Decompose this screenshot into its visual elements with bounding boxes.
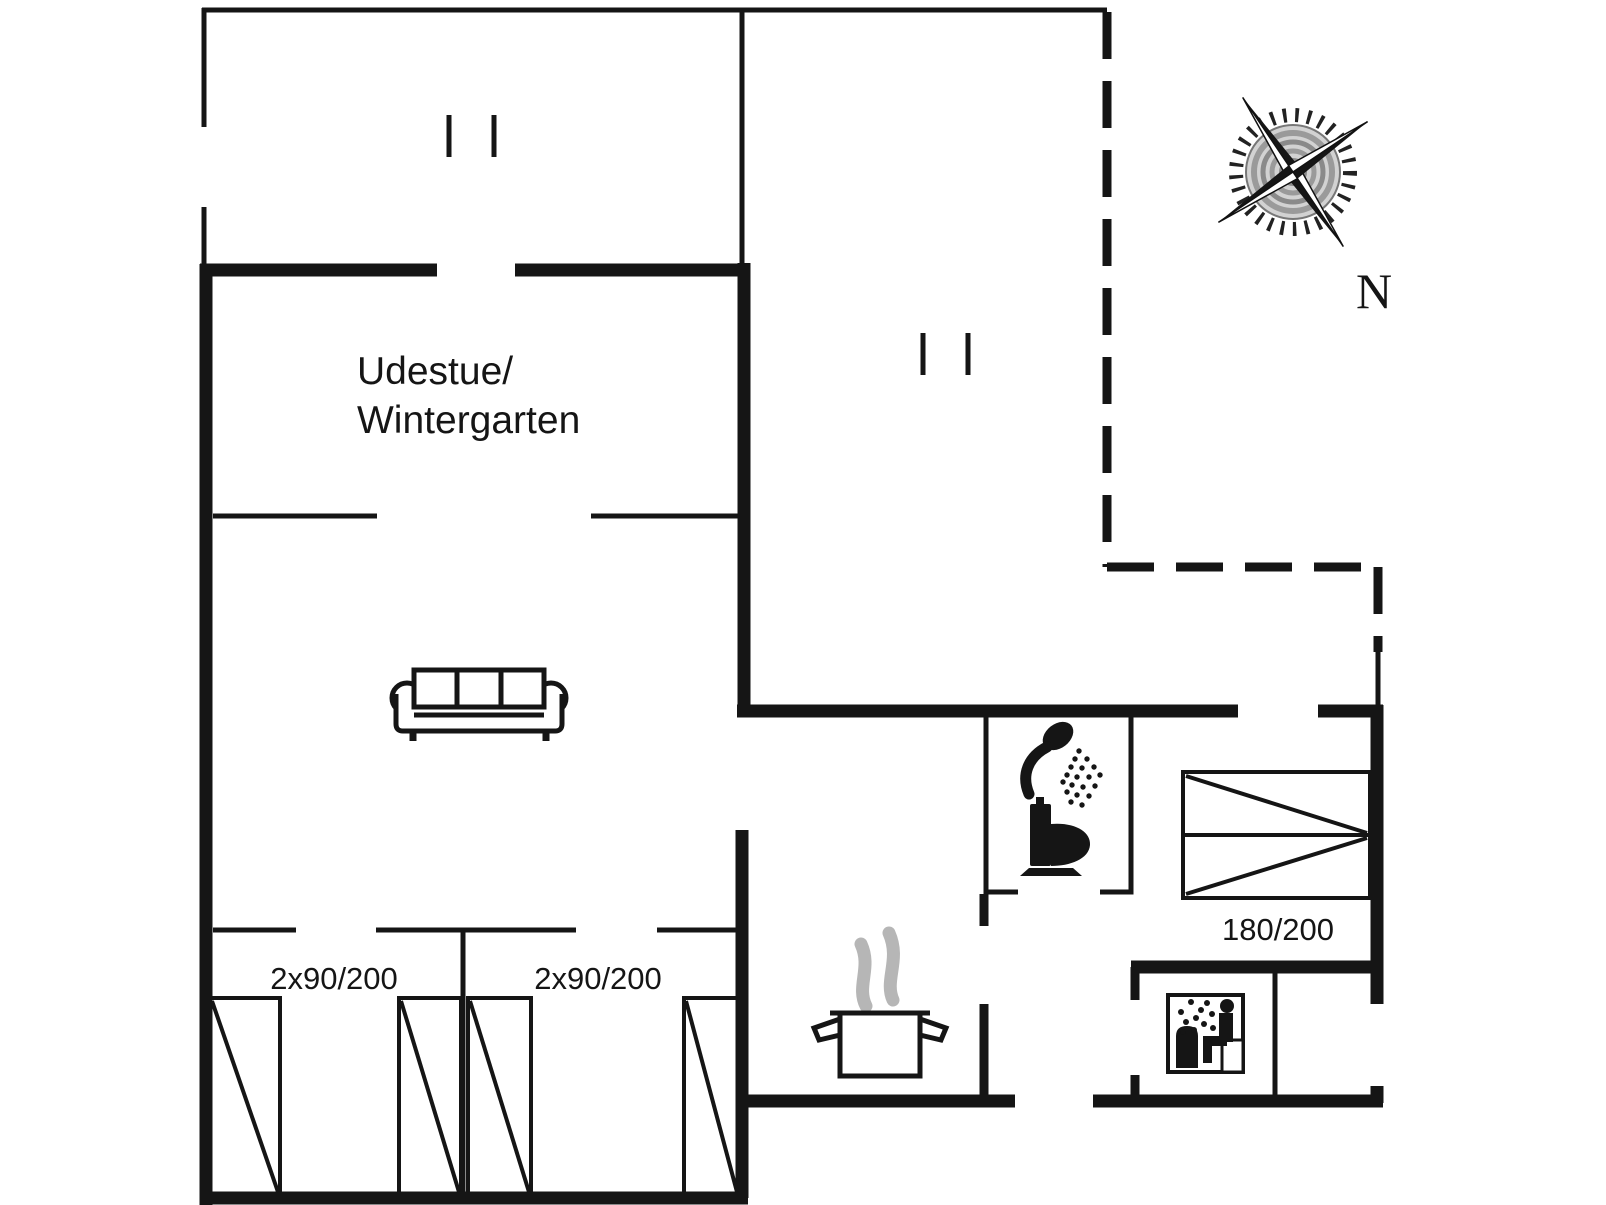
compass-north-label: N (1356, 263, 1392, 319)
toilet-icon (1020, 797, 1090, 876)
single-bed-icon-3 (468, 998, 531, 1194)
compass-star (1168, 47, 1418, 297)
shower-icon (1026, 716, 1103, 808)
compass-rose-icon (1168, 47, 1418, 297)
shower-spray (1060, 748, 1102, 807)
single-bed-icon-1 (210, 998, 280, 1194)
bed-size-label-left: 2x90/200 (270, 961, 398, 996)
room-label-conservatory-line2: Wintergarten (357, 399, 580, 442)
single-bed-icon-4 (684, 998, 739, 1194)
double-bed-icon (1183, 772, 1370, 898)
room-label-conservatory-line1: Udestue/ (357, 350, 513, 393)
bed-size-label-double: 180/200 (1222, 912, 1334, 947)
floor-plan-page: Udestue/ Wintergarten 2x90/200 2x90/200 … (0, 0, 1606, 1205)
terrace-posts (449, 115, 968, 375)
bed-size-label-right: 2x90/200 (534, 961, 662, 996)
single-bed-icon-2 (399, 998, 461, 1194)
cooking-pot-icon (814, 1013, 946, 1076)
sauna-icon (1168, 995, 1243, 1072)
floor-plan-drawing: Udestue/ Wintergarten 2x90/200 2x90/200 … (0, 0, 1606, 1205)
roof-overhang-dashed-boundary (1107, 12, 1378, 705)
sofa-icon (392, 670, 566, 741)
steam-icon (861, 933, 893, 1006)
terrace-outline (202, 8, 1107, 268)
